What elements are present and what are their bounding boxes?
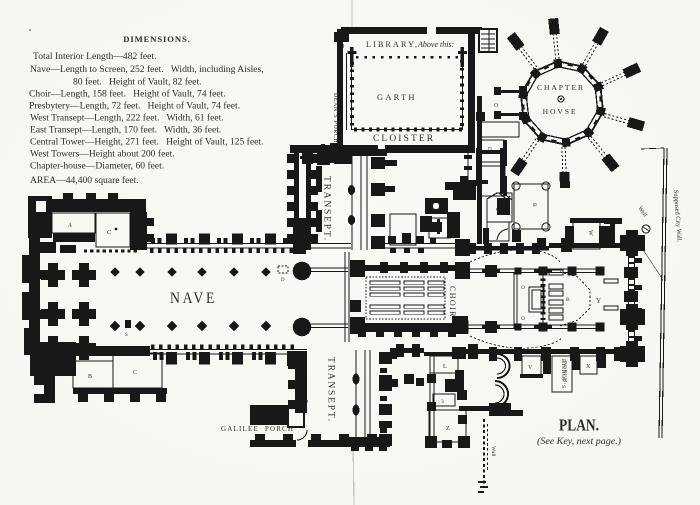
svg-text:CLOISTER: CLOISTER — [373, 134, 435, 144]
svg-text:W: W — [587, 230, 593, 236]
svg-text:TRANSEPT.: TRANSEPT. — [322, 176, 332, 242]
svg-text:DIMENSIONS.: DIMENSIONS. — [123, 34, 190, 44]
svg-text:O: O — [494, 103, 499, 109]
svg-text:X: X — [586, 364, 591, 370]
svg-text:NAVE: NAVE — [170, 290, 217, 307]
svg-text:O: O — [521, 316, 525, 322]
svg-text:CHAPTER: CHAPTER — [537, 83, 585, 92]
svg-text:(See Key, next page.): (See Key, next page.) — [537, 436, 621, 447]
svg-text:CHOIR: CHOIR — [448, 286, 457, 318]
svg-text:V: V — [528, 365, 533, 371]
svg-text:PLAN.: PLAN. — [559, 416, 599, 435]
svg-text:D: D — [281, 278, 285, 283]
svg-text:B: B — [531, 203, 537, 207]
svg-text:Choir—Length, 158 feet. Heigh: Choir—Length, 158 feet. Height of Vault,… — [29, 89, 226, 100]
svg-text:Above this:: Above this: — [417, 40, 455, 49]
svg-text:HOVSE: HOVSE — [543, 107, 578, 116]
svg-text:L: L — [443, 364, 447, 370]
svg-text:Wall: Wall — [490, 446, 496, 457]
svg-text:B: B — [88, 374, 92, 380]
svg-text:West Transept—Length, 222 feet: West Transept—Length, 222 feet. Width, 6… — [30, 113, 224, 124]
svg-text:Z: Z — [446, 426, 450, 432]
svg-text:Chapter-house—Diameter, 60 fee: Chapter-house—Diameter, 60 feet. — [30, 161, 164, 172]
svg-text:TRANSEPT.: TRANSEPT. — [326, 357, 336, 423]
svg-text:3: 3 — [441, 399, 444, 405]
svg-text:West Towers—Height about 200 f: West Towers—Height about 200 feet. — [30, 149, 175, 160]
svg-text:LIBRARY,: LIBRARY, — [366, 40, 419, 49]
svg-text:G: G — [496, 207, 500, 213]
svg-text:Y: Y — [596, 297, 601, 305]
svg-text:Total Interior Length—482 feet: Total Interior Length—482 feet. — [33, 51, 156, 62]
svg-text:DEAN’S PORCH: DEAN’S PORCH — [332, 93, 338, 144]
svg-text:O: O — [521, 285, 525, 291]
svg-text:AREA—44,400 square feet.: AREA—44,400 square feet. — [30, 175, 139, 186]
svg-text:80 feet. Height of Vault, 82: 80 feet. Height of Vault, 82 feet. — [73, 77, 202, 88]
svg-text:GALILEE PORCH: GALILEE PORCH — [221, 425, 294, 433]
svg-text:Central Tower—Height, 271 feet: Central Tower—Height, 271 feet. Height o… — [30, 137, 263, 148]
svg-text:B: B — [566, 297, 570, 303]
svg-text:PORCH: PORCH — [562, 361, 568, 383]
svg-text:East Transept—Length, 170 feet: East Transept—Length, 170 feet. Width, 3… — [30, 125, 221, 136]
svg-text:C: C — [133, 370, 137, 376]
svg-text:Presbytery—Length, 72 feet. H: Presbytery—Length, 72 feet. Height of Va… — [29, 101, 240, 112]
svg-text:GARTH: GARTH — [377, 92, 417, 102]
svg-text:Nave—Length to Screen, 252 fee: Nave—Length to Screen, 252 feet. Width, … — [30, 64, 264, 75]
svg-text:A: A — [67, 223, 72, 229]
svg-text:S: S — [125, 333, 128, 338]
